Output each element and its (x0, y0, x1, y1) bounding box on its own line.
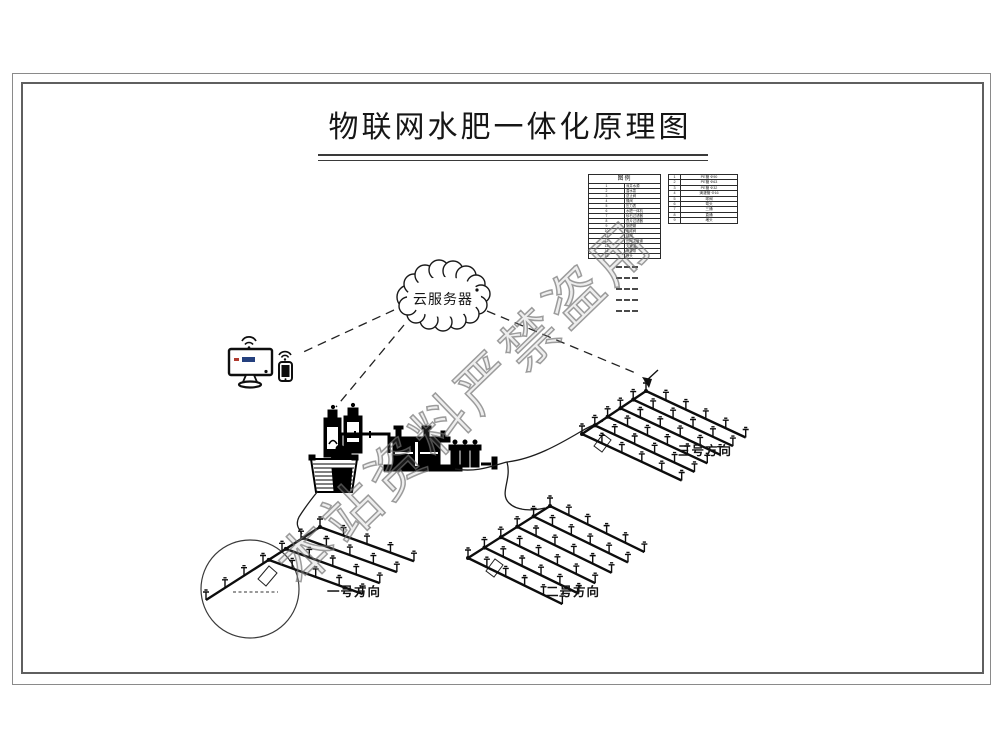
legend-notes (616, 266, 642, 321)
legend-table-main: 图例 1深井水源2潜水泵3逆止阀4蝶阀5压力表6水肥一体机7砂石过滤器8叠片过滤… (588, 174, 661, 259)
pipe-to-field1 (297, 491, 318, 534)
field-pipe-lines (582, 391, 746, 480)
phone-terminal (279, 352, 292, 381)
link-cloud-fertilizer (336, 325, 404, 407)
pipe-junction-dot (499, 535, 503, 539)
legend-row: 9堵头 (669, 218, 738, 223)
link-cloud-terminal (299, 310, 394, 354)
pipe-junction-dot (466, 556, 470, 560)
legend-cell: 15 (589, 254, 625, 259)
pipe-junction-dot (618, 406, 622, 410)
pipe-junction-dot (593, 423, 597, 427)
wireless-links (299, 310, 638, 407)
legend-cell: 喷头 (625, 254, 661, 259)
pipe-junction-dot (580, 432, 584, 436)
wifi-icon (279, 352, 291, 355)
legend-cell: 堵头 (681, 218, 738, 223)
legend-note-dash (616, 310, 638, 312)
legend-table-pipes: 1PE管 Φ902PE管 Φ633PE管 Φ324滴灌管 Φ165球阀6弯头7三… (668, 174, 738, 224)
pipe-junction-dot (532, 514, 536, 518)
pipe-junction-dot (548, 504, 552, 508)
pipe-junction-dot (515, 525, 519, 529)
pipe-junction-dot (267, 558, 271, 562)
field1-label: 一号方向 (327, 581, 381, 600)
detail-callout-circle (201, 540, 299, 638)
fertigation-station (309, 403, 497, 492)
cloud-server-label: 云服务器 (406, 289, 480, 309)
field-grid-1 (203, 517, 417, 600)
legend-row: 15喷头 (589, 254, 661, 259)
screen-red-bar (234, 358, 239, 361)
legend-note-dash (616, 277, 638, 279)
legend-cell: 9 (669, 218, 681, 223)
phone-screen (282, 365, 290, 377)
pipe-junction-dot (301, 536, 305, 540)
screen-blue-bar (242, 357, 255, 362)
pipe-junction-dot (284, 547, 288, 551)
pipe-junction-dot (482, 546, 486, 550)
field3-label: 三号方向 (678, 440, 732, 459)
legend-header: 图例 (589, 175, 661, 184)
pipe-junction-dot (606, 415, 610, 419)
drawing-title: 物联网水肥一体化原理图 (260, 102, 760, 146)
legend-note-dash (616, 299, 638, 301)
pipe-junction-dot (644, 389, 648, 393)
pipe-junction-dot (318, 525, 322, 529)
pipe-junction-dot (631, 398, 635, 402)
pc-terminal (229, 337, 272, 388)
title-underline (318, 154, 708, 161)
field-pipe-lines (206, 527, 414, 600)
field2-label: 二号方向 (546, 581, 600, 600)
field-grid-3 (579, 381, 749, 480)
legend-note-dash (616, 288, 638, 290)
legend-note-dash (616, 266, 638, 268)
link-arrow-shaft (646, 370, 658, 381)
monitor-base (239, 382, 261, 388)
pipe-to-field2 (505, 462, 545, 510)
wifi-icon (242, 337, 256, 341)
drawing-sheet: { "title": "物联网水肥一体化原理图", "cloud": { "la… (0, 0, 1000, 750)
